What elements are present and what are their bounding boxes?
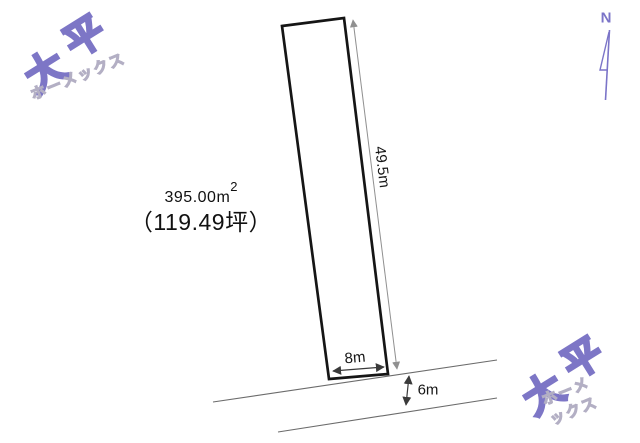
area-label: 395.00m2 （119.49坪） bbox=[96, 189, 306, 236]
dimension-label-road-width: 6m bbox=[418, 382, 439, 399]
area-superscript: 2 bbox=[230, 179, 237, 194]
area-tsubo: （119.49坪） bbox=[96, 210, 306, 236]
area-square-meters: 395.00m2 bbox=[96, 189, 306, 207]
compass-north-label: N bbox=[601, 10, 612, 27]
land-plot-diagram: N 395.00m2 （119.49坪） 49.5m 8m 6m 大 平 ホーメ… bbox=[0, 0, 640, 443]
dimension-label-frontage: 8m bbox=[344, 349, 366, 368]
